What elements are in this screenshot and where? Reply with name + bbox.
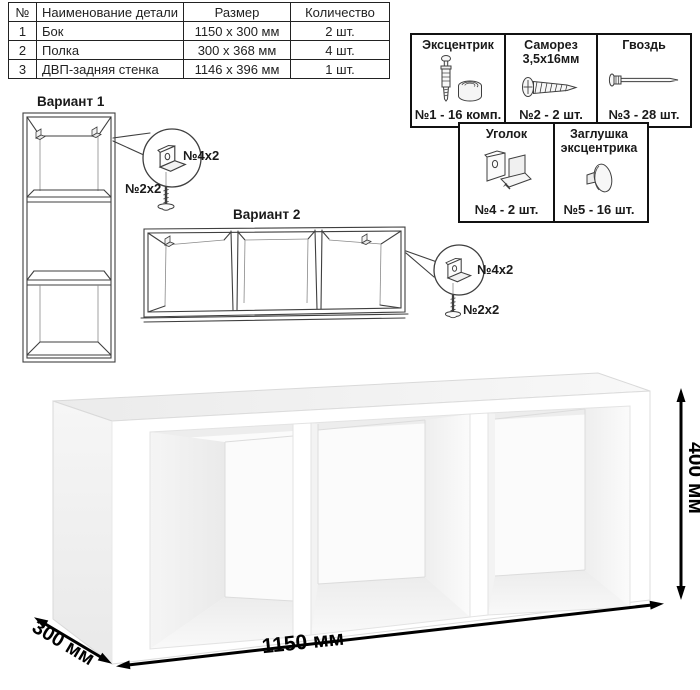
part-size: 300 х 368 мм bbox=[184, 41, 291, 60]
table-row: 1 Бок 1150 х 300 мм 2 шт. bbox=[9, 22, 390, 41]
part-size: 1150 х 300 мм bbox=[184, 22, 291, 41]
height-dimension-label: 400 мм bbox=[683, 412, 700, 544]
hardware-cell-screw: Саморез 3,5х16мм №2 - 2 шт. bbox=[504, 35, 596, 126]
assembly-instruction-sheet: { "parts_table": { "headers": ["№", "Наи… bbox=[0, 0, 700, 690]
hardware-box-bottom-row: Уголок №4 - 2 шт. Заглушка эксцентрика №… bbox=[458, 122, 649, 223]
part-num: 2 bbox=[9, 41, 37, 60]
parts-table: № Наименование детали Размер Количество … bbox=[8, 2, 390, 79]
col-header-name: Наименование детали bbox=[37, 3, 184, 22]
callout1-bracket-label: №4х2 bbox=[183, 148, 219, 163]
part-name: Бок bbox=[37, 22, 184, 41]
cam-cap-icon bbox=[579, 156, 619, 202]
part-size: 1146 х 396 мм bbox=[184, 60, 291, 79]
hardware-name: Гвоздь bbox=[622, 38, 666, 52]
col-header-num: № bbox=[9, 3, 37, 22]
shelf-3d-render bbox=[53, 373, 650, 664]
callout2-bracket-label: №4х2 bbox=[477, 262, 513, 277]
table-row: 3 ДВП-задняя стенка 1146 х 396 мм 1 шт. bbox=[9, 60, 390, 79]
table-row: 2 Полка 300 х 368 мм 4 шт. bbox=[9, 41, 390, 60]
part-name: Полка bbox=[37, 41, 184, 60]
hardware-cell-bracket: Уголок №4 - 2 шт. bbox=[460, 124, 553, 221]
variant1-title: Вариант 1 bbox=[37, 94, 104, 109]
variant1-callout bbox=[113, 129, 201, 210]
hardware-name: Уголок bbox=[486, 127, 527, 141]
screw-icon bbox=[519, 67, 583, 107]
hardware-box-top-row: Эксцентрик №1 - 16 комп. Са bbox=[410, 33, 692, 128]
part-qty: 1 шт. bbox=[291, 60, 390, 79]
hardware-qty: №4 - 2 шт. bbox=[475, 202, 539, 217]
hardware-name: Заглушка эксцентрика bbox=[557, 127, 641, 156]
hardware-qty: №3 - 28 шт. bbox=[608, 107, 679, 122]
callout2-screw-label: №2х2 bbox=[463, 302, 499, 317]
hardware-name: Саморез 3,5х16мм bbox=[508, 38, 594, 67]
variant2-drawing bbox=[141, 227, 408, 322]
hardware-qty: №2 - 2 шт. bbox=[519, 107, 583, 122]
part-qty: 2 шт. bbox=[291, 22, 390, 41]
corner-bracket-icon bbox=[479, 141, 535, 202]
hardware-qty: №1 - 16 комп. bbox=[415, 107, 502, 122]
variant1-drawing bbox=[23, 113, 115, 362]
part-name: ДВП-задняя стенка bbox=[37, 60, 184, 79]
hardware-name: Эксцентрик bbox=[422, 38, 494, 52]
part-num: 1 bbox=[9, 22, 37, 41]
parts-table-header: № Наименование детали Размер Количество bbox=[9, 3, 390, 22]
nail-icon bbox=[606, 52, 682, 107]
col-header-qty: Количество bbox=[291, 3, 390, 22]
hardware-cell-cap: Заглушка эксцентрика №5 - 16 шт. bbox=[553, 124, 643, 221]
part-qty: 4 шт. bbox=[291, 41, 390, 60]
part-num: 3 bbox=[9, 60, 37, 79]
hardware-cell-cam: Эксцентрик №1 - 16 комп. bbox=[412, 35, 504, 126]
hardware-qty: №5 - 16 шт. bbox=[563, 202, 634, 217]
hardware-cell-nail: Гвоздь №3 - 28 шт. bbox=[596, 35, 690, 126]
cam-bolt-and-lock-icon bbox=[429, 52, 487, 107]
screw-icon bbox=[445, 295, 460, 318]
col-header-size: Размер bbox=[184, 3, 291, 22]
callout1-screw-label: №2х2 bbox=[125, 181, 161, 196]
variant2-title: Вариант 2 bbox=[233, 207, 300, 222]
